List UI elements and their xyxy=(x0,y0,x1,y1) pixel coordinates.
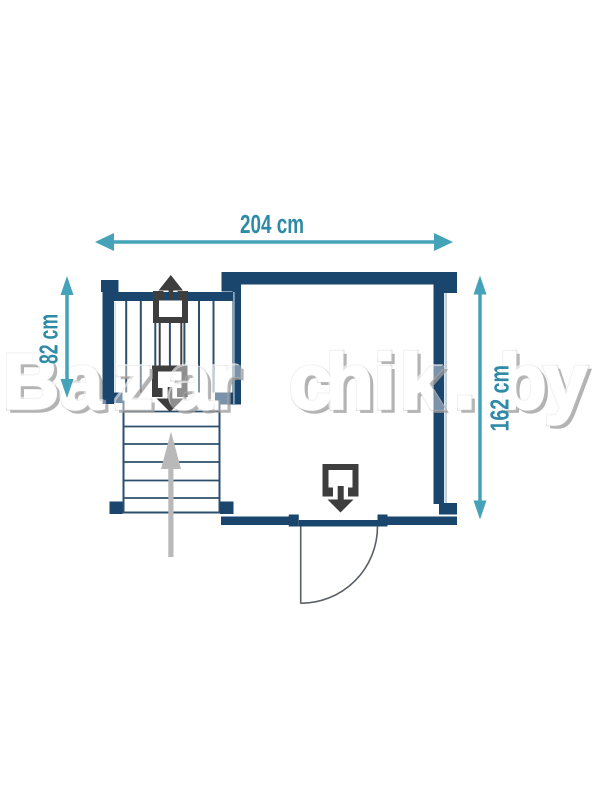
svg-text:82 cm: 82 cm xyxy=(36,314,64,364)
svg-text:204 cm: 204 cm xyxy=(240,211,304,239)
svg-text:162 cm: 162 cm xyxy=(487,365,515,432)
